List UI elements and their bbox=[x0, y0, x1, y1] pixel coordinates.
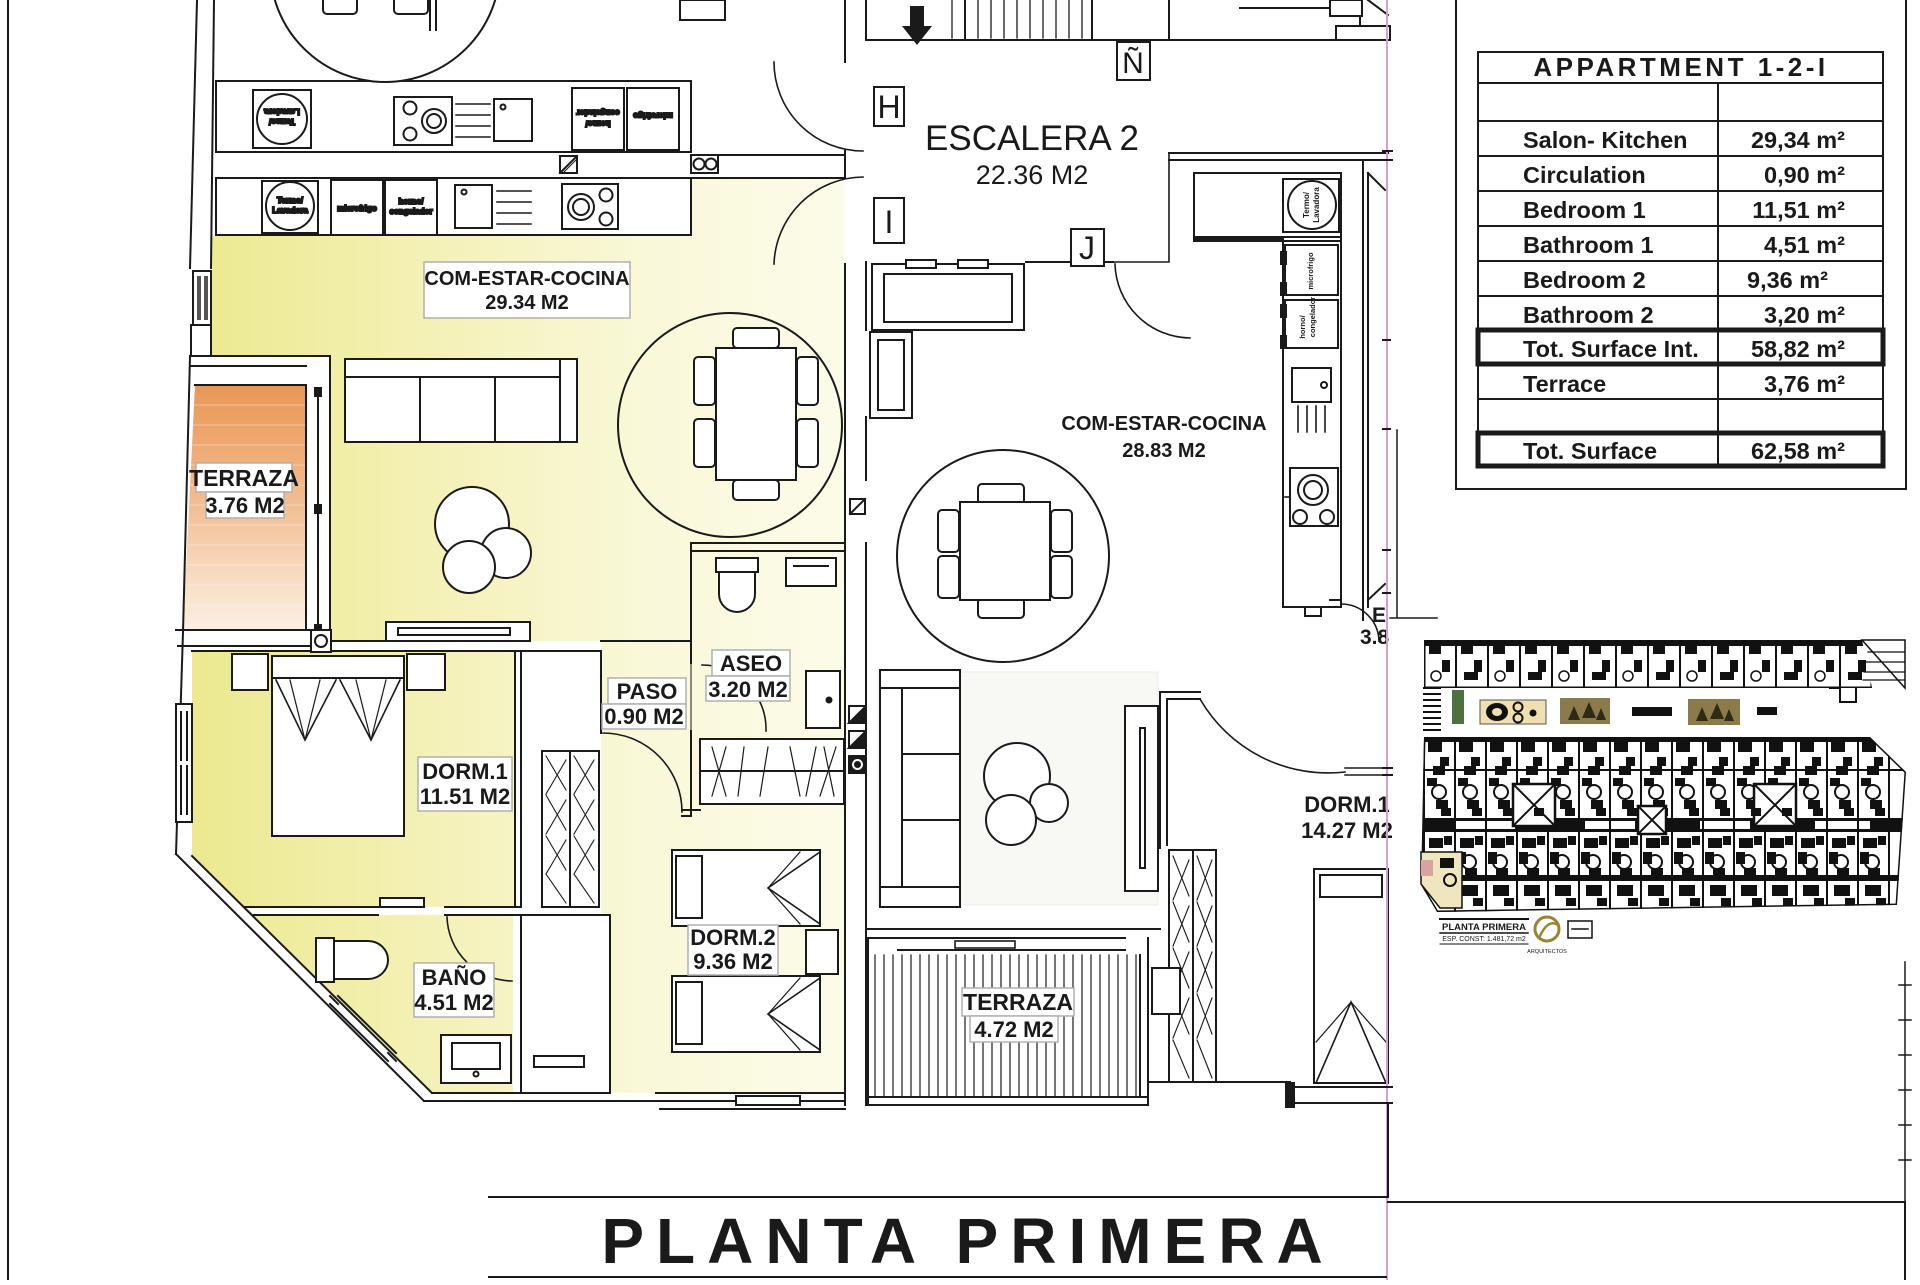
svg-text:Salon- Kitchen: Salon- Kitchen bbox=[1523, 127, 1688, 153]
svg-text:DORM.1: DORM.1 bbox=[1304, 792, 1390, 817]
svg-text:horno/: horno/ bbox=[585, 119, 611, 128]
svg-text:Termo/: Termo/ bbox=[1302, 191, 1311, 218]
svg-text:58,82 m²: 58,82 m² bbox=[1751, 336, 1845, 362]
svg-text:14.27 M2: 14.27 M2 bbox=[1301, 818, 1393, 843]
svg-text:29.34 M2: 29.34 M2 bbox=[485, 292, 568, 314]
svg-text:H: H bbox=[877, 89, 900, 125]
svg-text:PASO: PASO bbox=[617, 679, 678, 704]
svg-text:ASEO: ASEO bbox=[720, 651, 782, 676]
svg-text:E: E bbox=[1372, 604, 1386, 627]
svg-text:9.36 M2: 9.36 M2 bbox=[693, 949, 773, 974]
svg-text:Lavadora: Lavadora bbox=[264, 107, 300, 116]
svg-text:9,36 m²: 9,36 m² bbox=[1747, 267, 1828, 293]
svg-text:Termo/: Termo/ bbox=[268, 117, 295, 126]
svg-text:microfrigo: microfrigo bbox=[337, 204, 377, 213]
svg-text:Lavadora: Lavadora bbox=[1312, 187, 1321, 223]
svg-text:3,20 m²: 3,20 m² bbox=[1764, 302, 1845, 328]
svg-text:Ñ: Ñ bbox=[1122, 46, 1144, 80]
svg-text:horno/: horno/ bbox=[1298, 314, 1307, 338]
svg-text:congelador: congelador bbox=[576, 108, 619, 117]
svg-text:Bathroom 1: Bathroom 1 bbox=[1523, 232, 1654, 258]
svg-text:J: J bbox=[1079, 230, 1095, 266]
svg-text:Lavadora: Lavadora bbox=[272, 206, 308, 215]
svg-text:I: I bbox=[885, 204, 894, 240]
svg-text:3,76 m²: 3,76 m² bbox=[1764, 371, 1845, 397]
svg-text:4,51 m²: 4,51 m² bbox=[1764, 232, 1845, 258]
svg-text:PLANTA PRIMERA: PLANTA PRIMERA bbox=[601, 1205, 1334, 1277]
svg-text:ESCALERA 2: ESCALERA 2 bbox=[925, 119, 1139, 158]
svg-text:Tot. Surface Int.: Tot. Surface Int. bbox=[1523, 336, 1699, 362]
svg-text:0.90 M2: 0.90 M2 bbox=[604, 704, 684, 729]
svg-text:microfrigo: microfrigo bbox=[1306, 252, 1315, 290]
svg-text:3.76 M2: 3.76 M2 bbox=[205, 493, 285, 518]
svg-text:Bedroom 1: Bedroom 1 bbox=[1523, 197, 1646, 223]
svg-text:microfrigo: microfrigo bbox=[633, 111, 673, 120]
svg-text:28.83 M2: 28.83 M2 bbox=[1122, 440, 1205, 462]
svg-text:PLANTA PRIMERA: PLANTA PRIMERA bbox=[1442, 922, 1526, 933]
svg-text:22.36 M2: 22.36 M2 bbox=[976, 160, 1089, 190]
svg-text:0,90 m²: 0,90 m² bbox=[1764, 162, 1845, 188]
svg-text:COM-ESTAR-COCINA: COM-ESTAR-COCINA bbox=[424, 268, 629, 290]
svg-text:congelador: congelador bbox=[1308, 297, 1317, 338]
svg-text:11.51 M2: 11.51 M2 bbox=[420, 784, 511, 809]
svg-text:DORM.2: DORM.2 bbox=[690, 925, 776, 950]
svg-text:ARQUITECTOS: ARQUITECTOS bbox=[1527, 949, 1567, 955]
svg-text:congelador: congelador bbox=[389, 207, 432, 216]
svg-text:COM-ESTAR-COCINA: COM-ESTAR-COCINA bbox=[1061, 413, 1266, 435]
svg-text:3.20 M2: 3.20 M2 bbox=[708, 677, 788, 702]
svg-text:29,34 m²: 29,34 m² bbox=[1751, 127, 1845, 153]
svg-text:11,51 m²: 11,51 m² bbox=[1752, 197, 1845, 223]
svg-text:TERRAZA: TERRAZA bbox=[963, 989, 1073, 1015]
svg-text:APPARTMENT 1-2-I: APPARTMENT 1-2-I bbox=[1533, 52, 1828, 82]
svg-text:Bedroom 2: Bedroom 2 bbox=[1523, 267, 1646, 293]
svg-text:Termo/: Termo/ bbox=[277, 196, 304, 205]
svg-text:ESP. CONST: 1.481,72 m2: ESP. CONST: 1.481,72 m2 bbox=[1442, 936, 1526, 943]
svg-text:4.51 M2: 4.51 M2 bbox=[414, 990, 494, 1015]
svg-text:62,58 m²: 62,58 m² bbox=[1751, 438, 1845, 464]
svg-text:DORM.1: DORM.1 bbox=[422, 759, 508, 784]
svg-text:4.72 M2: 4.72 M2 bbox=[974, 1017, 1054, 1042]
svg-text:BAÑO: BAÑO bbox=[422, 965, 487, 990]
svg-text:Terrace: Terrace bbox=[1523, 371, 1606, 397]
svg-text:TERRAZA: TERRAZA bbox=[189, 465, 299, 491]
svg-text:Circulation: Circulation bbox=[1523, 162, 1646, 188]
svg-text:horno/: horno/ bbox=[399, 197, 425, 206]
svg-text:3.8: 3.8 bbox=[1360, 626, 1390, 649]
svg-text:Tot. Surface: Tot. Surface bbox=[1523, 438, 1657, 464]
svg-text:Bathroom 2: Bathroom 2 bbox=[1523, 302, 1654, 328]
